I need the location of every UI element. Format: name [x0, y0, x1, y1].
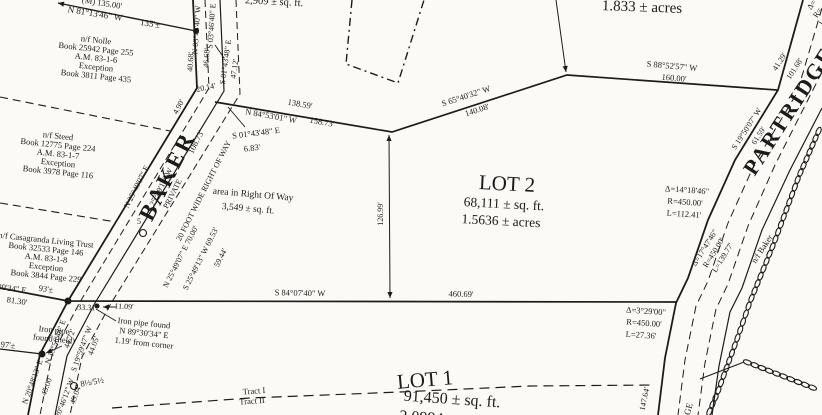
label-left_lines-d1: 93'± [38, 284, 54, 294]
corner-point [39, 351, 45, 357]
survey-plat: (M) 135.00'N 81°13'46" W135'±n/f NolleBo… [0, 0, 822, 415]
label-left_lines-off: 11.09' [114, 303, 134, 312]
label-baker-j2d: 6.83' [243, 143, 260, 153]
label-lot2-title: LOT 2 [478, 172, 535, 196]
label-tracts-t2: Tract II [239, 396, 265, 406]
label-baker-pole1: 5 [137, 218, 141, 226]
label-upper_lots-right_acres: 1.833 ± acres [602, 0, 683, 17]
label-partridge-c1r: R=450.00' [667, 197, 703, 208]
label-left_lines-d3: 97'± [0, 340, 16, 350]
label-lot2-interior_dim: 126.99' [377, 202, 385, 225]
label-baker-n3: 40.68' [186, 52, 195, 72]
label-baker-n4: 46.68' [202, 48, 211, 68]
arrowhead [386, 135, 391, 141]
label-north_boundary-b3d: 160.00' [661, 73, 687, 84]
arrowhead [103, 304, 109, 309]
label-partridge-c3l: L=27.36' [625, 330, 656, 341]
label-south_boundary-b: S 84°07'40" W [275, 288, 326, 297]
label-partridge-c1l: L=112.41' [666, 209, 701, 220]
label-partridge-c3r: R=450.00' [626, 318, 662, 329]
label-south_boundary-d: 460.69' [448, 290, 473, 299]
corner-point [65, 298, 71, 304]
stone-wall-link [808, 384, 818, 391]
arrowhead [563, 66, 568, 72]
label-left_lines-jog: 33.31' [77, 303, 97, 312]
arrowhead [58, 2, 64, 7]
utility-pole-icon [140, 230, 147, 237]
arrowhead [387, 292, 392, 298]
